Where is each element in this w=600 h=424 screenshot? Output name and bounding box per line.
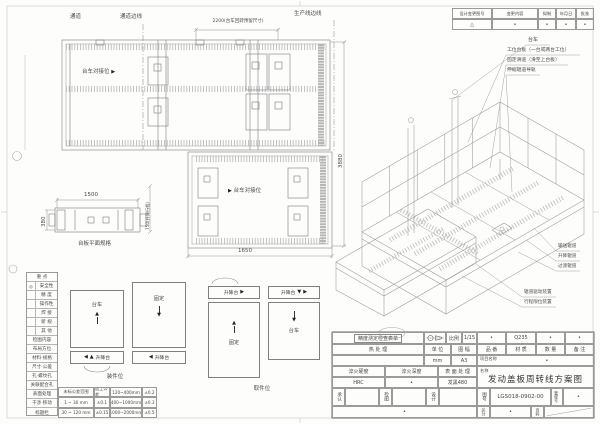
class-label-cell: 区分	[477, 406, 490, 418]
tolerance-cell: ±0.15	[94, 408, 110, 418]
checklist-label: 表面处理	[27, 391, 57, 397]
mgmt-no-label-cell: 管理号	[551, 388, 563, 406]
checklist-mark	[27, 309, 36, 317]
callout-conveyor-roller: 输送辊道	[558, 244, 576, 249]
dim-2200: 2200(台车回转预留尺寸)	[190, 20, 286, 25]
design-label: 设计	[430, 392, 436, 401]
checklist-mark	[27, 291, 36, 299]
revision-value-content: •	[492, 19, 538, 30]
drawing-title-value: 发动盖板周转线方案图	[488, 373, 583, 385]
scale-value-cell: 1/15	[462, 332, 477, 344]
tolerance-cell: ±0.2	[142, 387, 157, 397]
callout-travel-limit: 行程限位装置	[524, 300, 552, 305]
checklist-row: 尺寸·公差	[27, 363, 57, 372]
project-name-value: •	[501, 358, 593, 364]
label-aisle: 通道	[70, 14, 81, 20]
unit-value-cell: mm	[424, 355, 451, 366]
design-signature-cell	[439, 388, 477, 406]
label-dock-position-mid: ▶ 台车对接位	[228, 188, 261, 194]
revision-value-date: •	[556, 19, 576, 30]
class-label: 区分	[481, 408, 487, 416]
checklist-label: 新 规	[36, 319, 57, 325]
checklist-row: ◎安全性	[27, 282, 57, 291]
callout-work-plate: 工位台板（一台或两台工位）	[507, 48, 569, 53]
checklist-row: 精 度	[27, 291, 57, 300]
project-name-cell: 项目名称 •	[477, 355, 594, 366]
checklist-row: 焊 接	[27, 309, 57, 318]
drawing-title-label: 名称	[480, 368, 488, 374]
label-dock-position-top: 台车对接位 ▶	[82, 69, 115, 75]
checklist-row: 操作性	[27, 300, 57, 309]
dock-label-text: 台车对接位	[82, 69, 110, 75]
quench-hardness-label-cell: 淬火硬度	[332, 366, 385, 377]
tolerance-cell: ±0.5	[142, 408, 157, 418]
label-production-edge: 生产线边线	[294, 11, 322, 17]
schematic-label-fixed: 固定	[154, 295, 164, 302]
schematic-trolley-box: ▼ 台车	[268, 302, 320, 360]
class-value-cell: •	[490, 406, 531, 418]
checklist-label: 材料·规格	[27, 355, 57, 361]
schematic-label-lift: 升降台	[96, 354, 110, 361]
caption-loading-position: 装件位	[88, 374, 142, 380]
checklist-row: 其 他	[27, 327, 57, 336]
part-no-header-cell: 品 番	[477, 344, 506, 355]
revision-header-date: 年月日	[556, 8, 576, 19]
check-label-cell: 检图	[379, 388, 392, 406]
callout-telescopic-rail: 伸缩辊道导轨	[507, 68, 536, 73]
drawing-sheet: 通道 通道边线 2200(台车回转预留尺寸) 生产线边线 台车对接位 ▶ 388…	[0, 0, 600, 424]
checklist-header: 重 点	[27, 273, 57, 282]
arrow-left-icon: ◀	[84, 355, 88, 360]
approve-signature-cell	[345, 388, 379, 406]
callout-lift-roller: 升降辊道	[558, 254, 576, 259]
arrow-right-icon: ▶	[228, 188, 232, 194]
checklist-row: 标题栏	[27, 408, 57, 417]
schematic-label-lift: 升降台	[224, 289, 238, 296]
dim-1500: 1500	[84, 192, 98, 198]
tolerance-cell: 1000~2000mm	[110, 408, 142, 418]
caption-unloading-position: 取件位	[232, 386, 292, 392]
inspection-form-cell: 精度测定检查表单	[332, 332, 424, 344]
checklist-header-text: 重 点	[27, 274, 57, 280]
sheet-size-label-cell: 图 幅	[451, 344, 477, 355]
schematic-fixed-box: ▲ 固定	[208, 302, 260, 378]
checklist-mark: ◎	[27, 282, 36, 290]
callout-trolley: 台车	[528, 38, 538, 44]
edge-lines	[143, 20, 334, 150]
checklist-row: 表面处理	[27, 390, 57, 399]
plate-plan-view	[49, 208, 146, 232]
diagonal-slash-icon	[545, 406, 593, 418]
remark-header-cell: 备 注	[565, 344, 594, 355]
revision-header-approve: 批准	[576, 8, 594, 19]
arrow-stem	[234, 326, 235, 333]
tolerance-cell: 30 ~ 120 mm	[58, 408, 94, 418]
dock-label-text: 台车对接位	[234, 188, 262, 194]
label-aisle-edge: 通道边线	[120, 14, 142, 20]
drawing-no-label-cell: 图号	[477, 388, 490, 406]
arrow-right-icon: ▶	[111, 69, 115, 75]
approve-label: 承认	[336, 392, 342, 401]
project-name-label: 项目名称	[480, 356, 497, 362]
checklist-row: 关联配合孔	[27, 381, 57, 390]
dim-380: 380	[41, 217, 47, 228]
tolerance-cell: 400~1000mm	[110, 397, 142, 407]
checklist-row: 孔·螺纹孔	[27, 372, 57, 381]
checklist-label: 孔·螺纹孔	[27, 373, 57, 379]
quench-hardness-value-cell: HRC	[332, 377, 385, 388]
page-diagonal-cell	[544, 406, 594, 418]
callout-transition-roller: 过渡辊道	[558, 264, 576, 269]
checklist-section2-text: 检图内容	[27, 337, 57, 343]
mid-plan-view	[188, 152, 332, 248]
checklist-label: 操作性	[36, 301, 57, 307]
revision-header-change-no: 设计变更图号	[452, 8, 492, 19]
tolerance-cell: 加工公差	[94, 387, 110, 397]
checklist-table: 重 点 ◎安全性 精 度 操作性 焊 接 新 规 其 他 检图内容 布局方位 材…	[26, 272, 58, 416]
checklist-label: 安全性	[36, 283, 57, 289]
checklist-label: 尺寸·公差	[27, 364, 57, 370]
tolerance-cell: 未标公差范围	[58, 387, 94, 397]
arrow-right-icon: ▶	[240, 290, 244, 295]
dim-750-lift: 750(升降行程)	[146, 202, 151, 230]
schematic-lift-box: ◀ ▲ 升降台	[70, 351, 124, 364]
projection-symbol-cell	[424, 332, 446, 344]
schematic-label-trolley: 台车	[92, 301, 102, 308]
tolerance-cell: ±0.1	[94, 397, 110, 407]
checklist-label: 关联配合孔	[27, 382, 57, 388]
check-signature-cell	[392, 388, 426, 406]
callout-roller-drive: 辊道驱动装置	[524, 290, 552, 295]
schematic-lift-box: ◀ 升降台	[132, 351, 186, 364]
checklist-label: 焊 接	[36, 310, 57, 316]
checklist-label: 其 他	[36, 328, 57, 334]
checklist-label: 干涉·移动	[27, 400, 57, 406]
checklist-mark	[27, 300, 36, 308]
drawing-no-label: 图号	[481, 392, 487, 401]
surface-treatment-label-cell: 表 面 处 理	[438, 366, 477, 377]
dim-1650: 1650	[238, 248, 252, 254]
dim-3880: 3880	[338, 154, 344, 168]
drawing-no-value-cell: LGS018-0902-00	[490, 388, 551, 406]
sheet-size-value-cell: A3	[451, 355, 477, 366]
schematic-lift-box: 升降台 ▶	[208, 286, 260, 299]
arrow-down-icon: ▼	[157, 313, 161, 318]
approve-label-cell: 承认	[332, 388, 345, 406]
tolerance-cell: 1 ~ 30 mm	[58, 397, 94, 407]
arrow-up-icon: ▲	[90, 355, 94, 360]
checklist-label: 标题栏	[27, 410, 57, 416]
checklist-row: 布局方位	[27, 345, 57, 354]
mgmt-no-label: 管理号	[555, 391, 560, 402]
arrow-down-icon: ▼	[292, 318, 296, 323]
schematic-fixed-box: 固定 ▼	[132, 282, 186, 348]
schematic-label-lift: 升降台	[155, 354, 169, 361]
checklist-mark	[27, 327, 36, 335]
heat-treatment-label-cell: 热 处 理	[332, 344, 424, 355]
revision-header-drafter: 拟制	[538, 8, 556, 19]
tolerance-cell: 120~400mm	[110, 387, 142, 397]
heat-treatment-value-cell	[332, 355, 424, 366]
checklist-label: 精 度	[36, 292, 57, 298]
revision-header-content: 变更内容	[492, 8, 538, 19]
quantity-header-cell: 数 量	[536, 344, 565, 355]
arrow-stem	[97, 317, 98, 324]
scale-label-cell: 比例	[446, 332, 462, 344]
tolerance-cell: ±0.3	[142, 397, 157, 407]
unit-label-cell: 单 位	[424, 344, 451, 355]
surface-treatment-value-cell: 发黑480	[438, 377, 477, 388]
revision-value-approve: •	[576, 19, 594, 30]
footer-strip-cell: •	[332, 406, 477, 418]
quantity-value-cell: •	[536, 332, 565, 344]
checklist-row: 材料·规格	[27, 354, 57, 363]
callout-fixed-slide: 固定滑道（滑至上台板）	[507, 58, 560, 63]
first-angle-projection-icon	[425, 333, 445, 343]
schematic-label-trolley: 台车	[289, 327, 299, 334]
mgmt-no-value-cell: •	[563, 388, 594, 406]
material-value-cell: Q235	[506, 332, 536, 344]
top-plan-view	[62, 40, 330, 150]
plate-view-caption: 台板平面规格	[78, 241, 111, 247]
schematic-lift-box: 升降台 ▼ ▶	[268, 286, 320, 299]
revision-value-drafter: •	[538, 19, 556, 30]
checklist-label: 布局方位	[27, 346, 57, 352]
schematic-trolley-box: 台车 ▲	[70, 290, 124, 348]
checklist-mark	[27, 318, 36, 326]
checklist-row: 新 规	[27, 318, 57, 327]
design-label-cell: 设计	[426, 388, 439, 406]
page-label: 页码	[535, 408, 541, 416]
arrow-down-icon: ▼	[297, 290, 301, 295]
checklist-row: 干涉·移动	[27, 399, 57, 408]
part-no-value-cell: •	[477, 332, 506, 344]
checklist-section2-header: 检图内容	[27, 336, 57, 345]
revision-value-mark: △	[452, 19, 492, 30]
quench-depth-value-cell: •	[385, 377, 438, 388]
remark-value-cell: •	[565, 332, 594, 344]
schematic-label-fixed: 固定	[229, 339, 239, 346]
check-label: 检图	[383, 392, 389, 401]
arrow-left-icon: ◀	[149, 355, 153, 360]
page-label-cell: 页码	[531, 406, 544, 418]
inspection-form-label: 精度测定检查表单	[354, 334, 402, 343]
material-header-cell: 材 质	[506, 344, 536, 355]
drawing-title-cell: 名称 发动盖板周转线方案图	[477, 366, 594, 388]
arrow-right-icon: ▶	[303, 290, 307, 295]
schematic-label-lift: 升降台	[281, 289, 295, 296]
quench-depth-label-cell: 淬火深度	[385, 366, 438, 377]
